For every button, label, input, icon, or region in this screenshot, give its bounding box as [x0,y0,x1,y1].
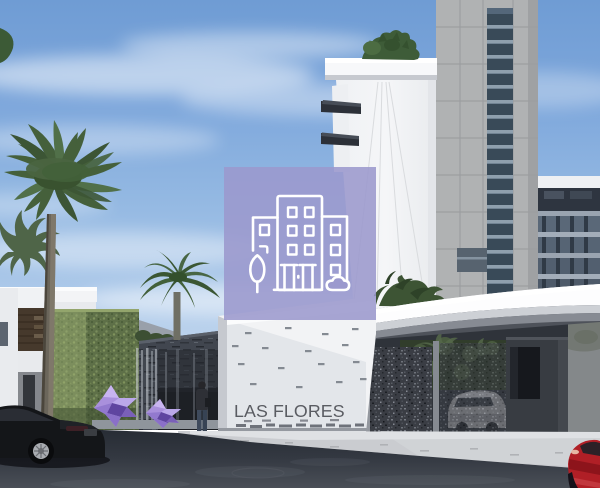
svg-text:LAS FLORES: LAS FLORES [234,401,345,421]
